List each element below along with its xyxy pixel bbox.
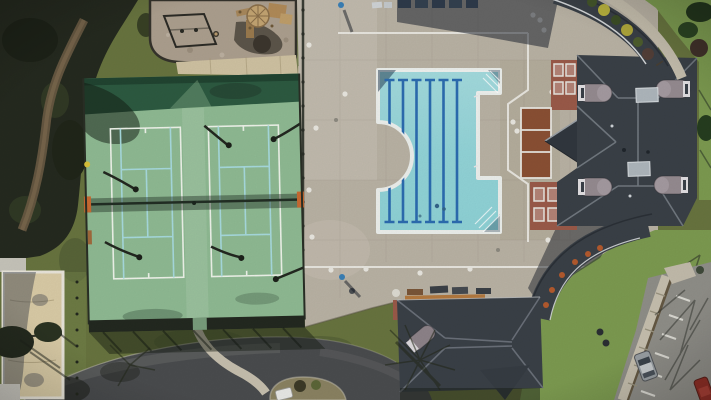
aerial-photo-recreation-center — [0, 0, 711, 400]
film-grain — [0, 0, 711, 400]
aerial-photo-canvas — [0, 0, 711, 400]
